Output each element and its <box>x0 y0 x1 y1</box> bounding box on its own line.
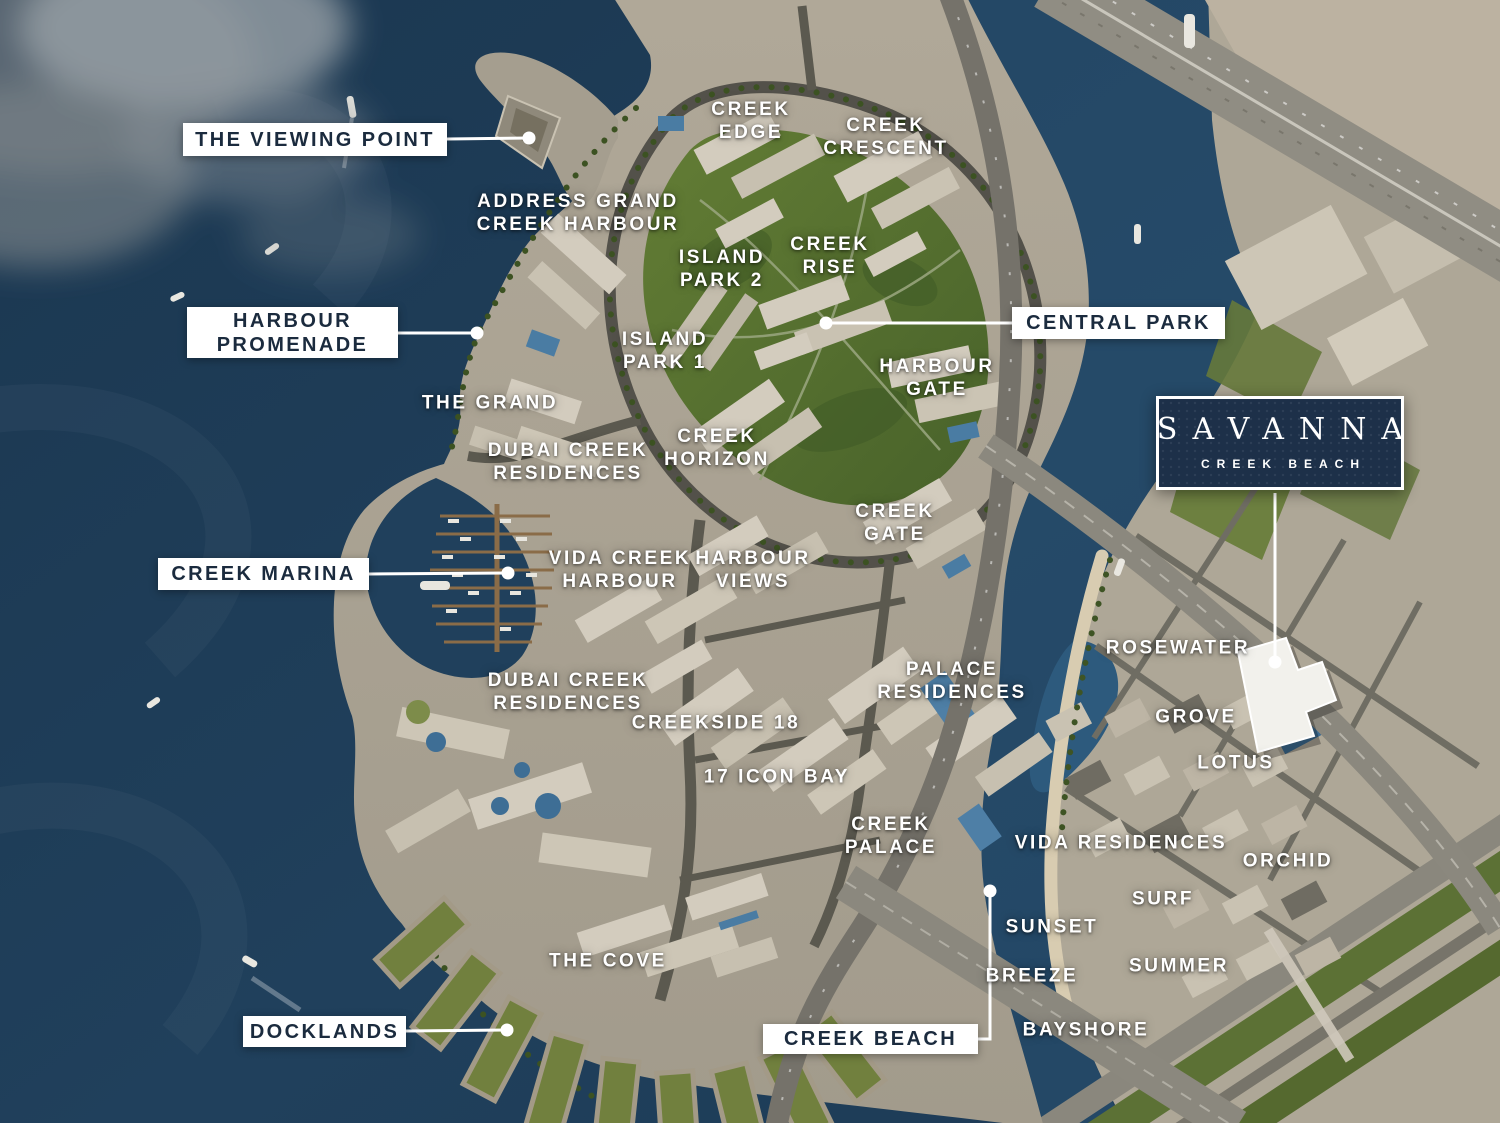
area-label-summer: SUMMER <box>1129 954 1229 977</box>
area-label-creek-palace: CREEKPALACE <box>845 813 937 859</box>
area-label-harbour-views: HARBOURVIEWS <box>695 547 810 593</box>
area-label-the-cove: THE COVE <box>549 949 667 972</box>
area-label-grove: GROVE <box>1155 705 1237 728</box>
area-label-bayshore: BAYSHORE <box>1023 1018 1150 1041</box>
area-label-address-grand-creek-harbour: ADDRESS GRANDCREEK HARBOUR <box>477 190 680 236</box>
area-label-dubai-creek-residences: DUBAI CREEKRESIDENCES <box>488 439 649 485</box>
area-label-harbour-gate: HARBOURGATE <box>879 355 994 401</box>
area-label-creek-gate: CREEKGATE <box>855 500 935 546</box>
area-label-dubai-creek-residences: DUBAI CREEKRESIDENCES <box>488 669 649 715</box>
area-label-creek-rise: CREEKRISE <box>790 233 870 279</box>
savanna-title: SAVANNA <box>1142 415 1418 445</box>
area-label-island-park-2: ISLANDPARK 2 <box>679 246 765 292</box>
area-label-vida-creek-harbour: VIDA CREEKHARBOUR <box>549 547 691 593</box>
area-label-surf: SURF <box>1132 887 1194 910</box>
masterplan-map: CREEKEDGECREEKCRESCENTADDRESS GRANDCREEK… <box>0 0 1500 1123</box>
area-label-17-icon-bay: 17 ICON BAY <box>704 765 850 788</box>
central-park-callout-box: CENTRAL PARK <box>1012 307 1225 339</box>
savanna-project-card: SAVANNA CREEK BEACH <box>1156 396 1404 490</box>
area-label-creekside-18: CREEKSIDE 18 <box>632 711 800 734</box>
the-viewing-point-callout-box: THE VIEWING POINT <box>183 123 447 156</box>
area-label-vida-residences: VIDA RESIDENCES <box>1015 831 1228 854</box>
area-label-creek-horizon: CREEKHORIZON <box>664 425 770 471</box>
area-label-lotus: LOTUS <box>1197 751 1274 774</box>
area-label-island-park-1: ISLANDPARK 1 <box>622 328 708 374</box>
area-label-palace-residences: PALACERESIDENCES <box>877 658 1027 704</box>
area-label-orchid: ORCHID <box>1243 849 1334 872</box>
area-label-breeze: BREEZE <box>986 964 1079 987</box>
savanna-subtitle: CREEK BEACH <box>1194 457 1366 471</box>
area-label-creek-edge: CREEKEDGE <box>711 98 791 144</box>
area-label-the-grand: THE GRAND <box>422 391 558 414</box>
area-label-creek-crescent: CREEKCRESCENT <box>823 114 948 160</box>
creek-beach-callout-box: CREEK BEACH <box>763 1024 978 1054</box>
creek-marina-callout-box: CREEK MARINA <box>158 558 369 590</box>
area-label-sunset: SUNSET <box>1006 915 1099 938</box>
area-label-rosewater: ROSEWATER <box>1106 636 1250 659</box>
harbour-promenade-callout-box: HARBOURPROMENADE <box>187 307 398 358</box>
docklands-callout-box: DOCKLANDS <box>243 1016 406 1047</box>
